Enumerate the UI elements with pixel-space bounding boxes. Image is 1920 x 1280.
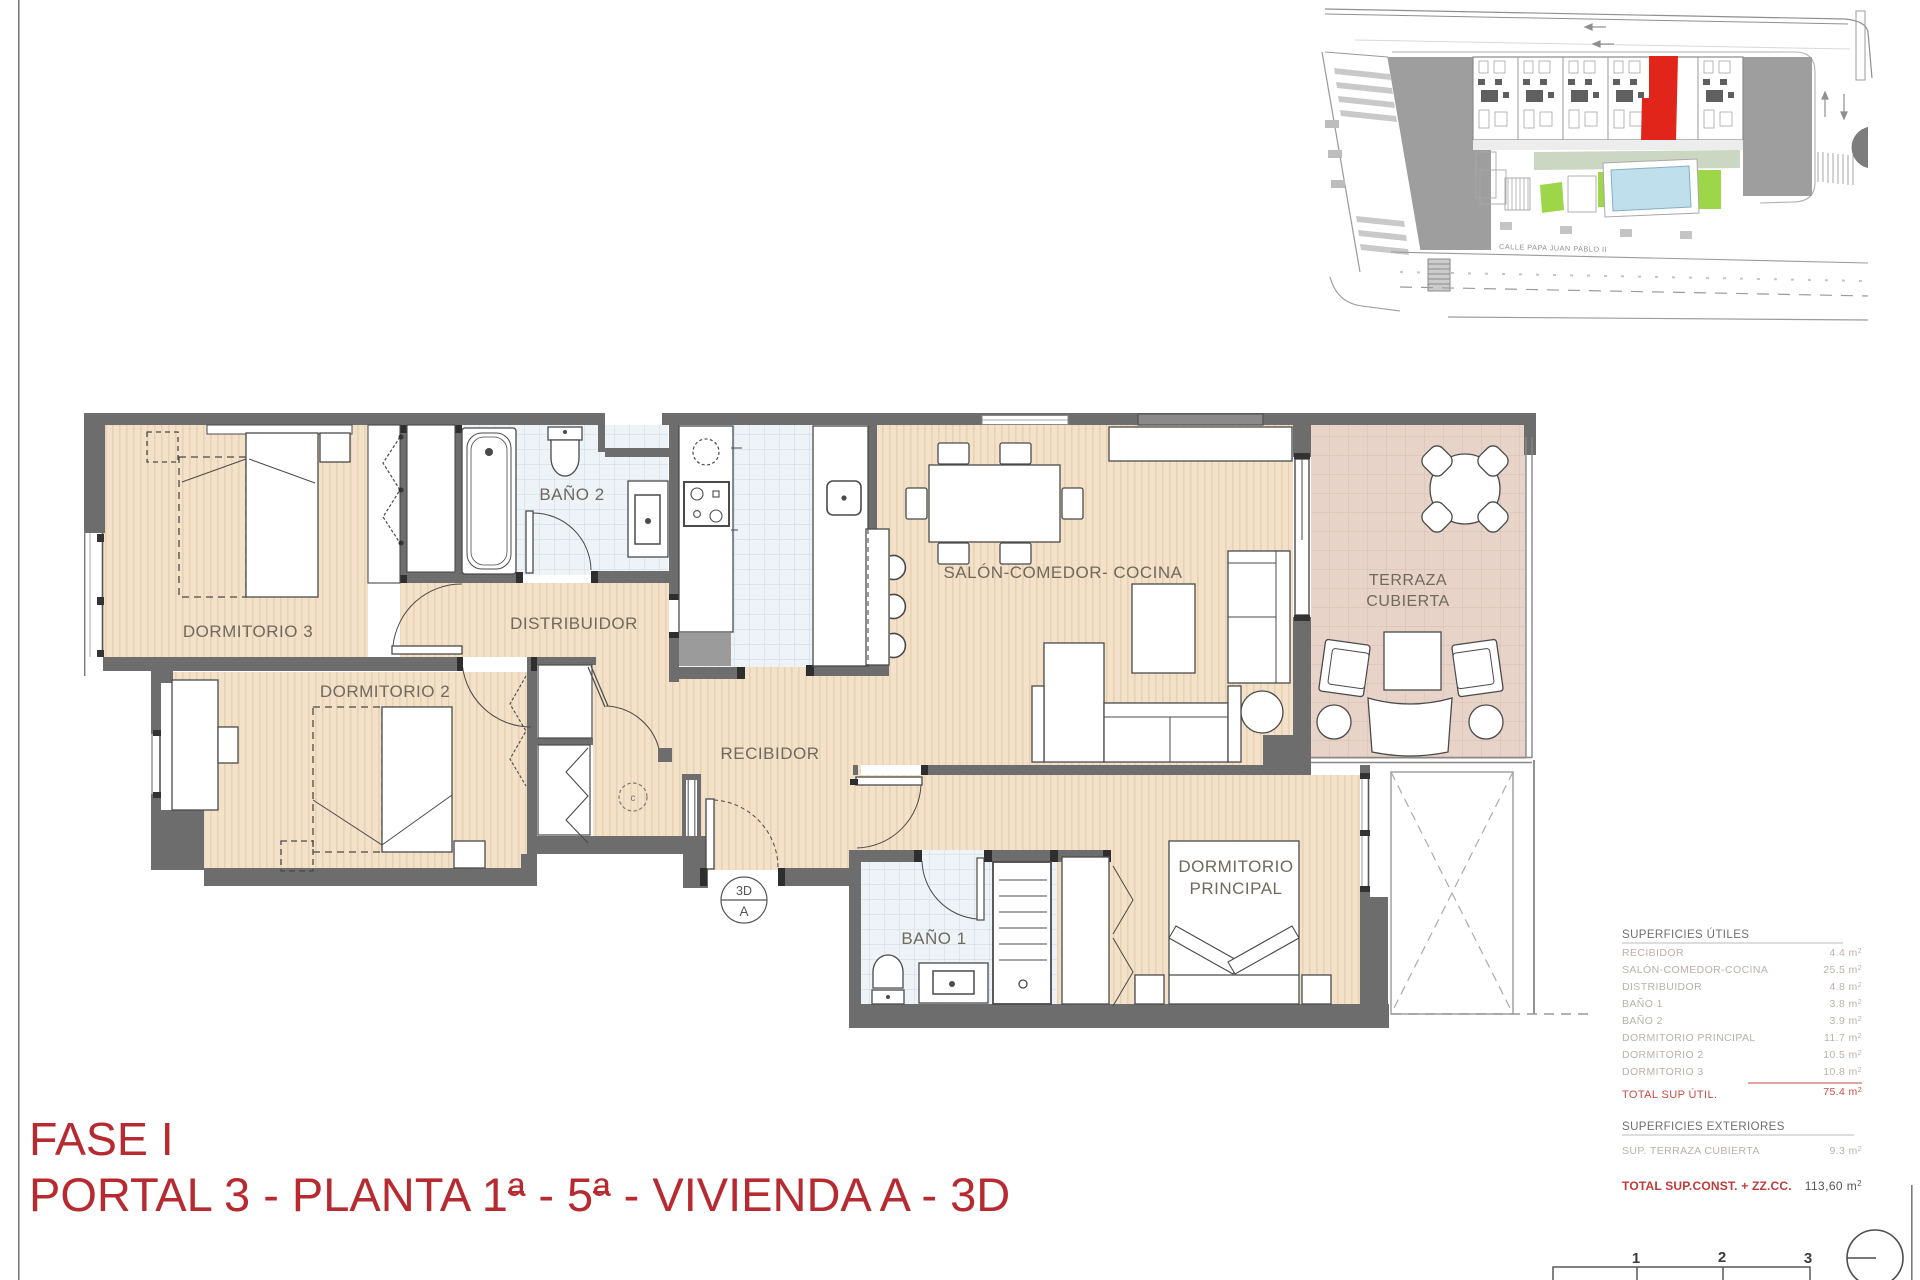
svg-text:4.8 m2: 4.8 m2 — [1829, 981, 1862, 993]
svg-text:BAÑO 2: BAÑO 2 — [1622, 1014, 1663, 1027]
svg-text:3: 3 — [1804, 1250, 1812, 1267]
svg-text:DORMITORIO: DORMITORIO — [1178, 857, 1293, 876]
svg-text:DORMITORIO 2: DORMITORIO 2 — [320, 682, 450, 701]
svg-text:FASE I: FASE I — [29, 1113, 174, 1165]
svg-text:25.5 m2: 25.5 m2 — [1823, 964, 1862, 976]
svg-text:PORTAL 3 - PLANTA 1ª - 5ª - VI: PORTAL 3 - PLANTA 1ª - 5ª - VIVIENDA A -… — [29, 1168, 1010, 1221]
svg-text:3.8 m2: 3.8 m2 — [1829, 998, 1862, 1010]
svg-text:DISTRIBUIDOR: DISTRIBUIDOR — [1622, 981, 1702, 993]
svg-text:113,60 m2: 113,60 m2 — [1805, 1179, 1862, 1193]
svg-text:BAÑO 2: BAÑO 2 — [539, 485, 604, 504]
svg-text:75.4 m2: 75.4 m2 — [1823, 1086, 1862, 1098]
svg-text:DORMITORIO 3: DORMITORIO 3 — [1622, 1066, 1704, 1078]
svg-text:CALLE PAPA JUAN PABLO II: CALLE PAPA JUAN PABLO II — [1499, 242, 1607, 254]
svg-text:11.7 m2: 11.7 m2 — [1824, 1032, 1862, 1044]
svg-text:DORMITORIO 2: DORMITORIO 2 — [1622, 1049, 1704, 1061]
svg-text:TOTAL SUP.CONST. + ZZ.CC.: TOTAL SUP.CONST. + ZZ.CC. — [1622, 1179, 1792, 1193]
svg-text:DORMITORIO 3: DORMITORIO 3 — [183, 622, 313, 641]
svg-text:RECIBIDOR: RECIBIDOR — [1622, 947, 1684, 959]
svg-text:SUPERFICIES EXTERIORES: SUPERFICIES EXTERIORES — [1622, 1121, 1785, 1133]
svg-text:TERRAZA: TERRAZA — [1369, 572, 1447, 589]
svg-text:10.5 m2: 10.5 m2 — [1823, 1049, 1862, 1061]
svg-text:10.8 m2: 10.8 m2 — [1823, 1066, 1862, 1078]
svg-text:RECIBIDOR: RECIBIDOR — [721, 744, 820, 763]
svg-text:3.9 m2: 3.9 m2 — [1829, 1015, 1862, 1027]
svg-text:A: A — [739, 904, 748, 919]
svg-text:DISTRIBUIDOR: DISTRIBUIDOR — [510, 614, 638, 633]
svg-text:DORMITORIO PRINCIPAL: DORMITORIO PRINCIPAL — [1622, 1032, 1756, 1044]
svg-text:SUP. TERRAZA CUBIERTA: SUP. TERRAZA CUBIERTA — [1622, 1145, 1760, 1157]
svg-text:3D: 3D — [736, 884, 752, 898]
svg-text:SUPERFICIES ÚTILES: SUPERFICIES ÚTILES — [1622, 928, 1749, 941]
svg-text:PRINCIPAL: PRINCIPAL — [1190, 879, 1283, 898]
svg-text:SALÓN-COMEDOR-COCINA: SALÓN-COMEDOR-COCINA — [1622, 963, 1768, 976]
svg-text:BAÑO 1: BAÑO 1 — [1622, 997, 1663, 1010]
svg-text:4.4 m2: 4.4 m2 — [1829, 947, 1862, 959]
svg-text:TOTAL SUP ÚTIL.: TOTAL SUP ÚTIL. — [1622, 1088, 1717, 1101]
svg-text:9.3 m2: 9.3 m2 — [1829, 1145, 1862, 1157]
svg-text:SALÓN-COMEDOR- COCINA: SALÓN-COMEDOR- COCINA — [943, 563, 1182, 582]
svg-text:1: 1 — [1632, 1250, 1640, 1267]
svg-text:BAÑO 1: BAÑO 1 — [901, 929, 966, 948]
svg-text:CUBIERTA: CUBIERTA — [1366, 593, 1449, 610]
svg-text:2: 2 — [1718, 1249, 1726, 1266]
svg-text:c: c — [631, 793, 636, 804]
